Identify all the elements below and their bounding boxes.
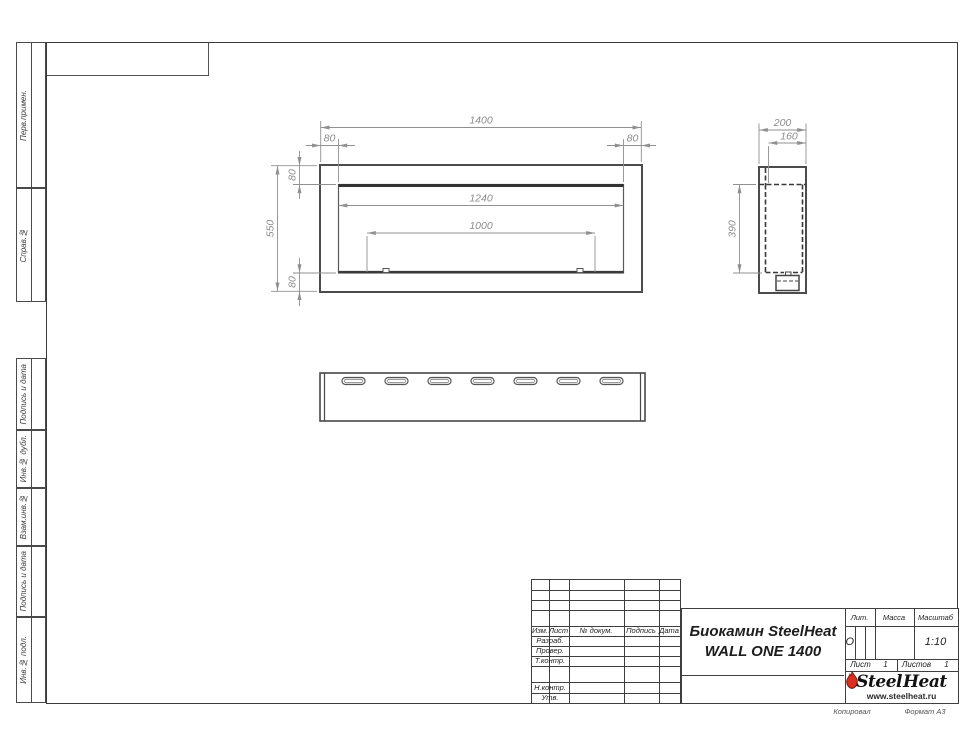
col-data: Дата [659,626,680,636]
lit-label: Лит. [845,609,875,626]
masshtab-value: 1:10 [914,626,958,659]
drawing-frame [46,42,958,704]
col-list: Лист [549,626,569,636]
steelheat-logo: Steel Heat www.steelheat.ru [845,671,959,703]
logo-steel-text: Steel [856,672,902,692]
margin-label: Справ.№ [19,228,28,262]
margin-box-podpis-data-1: Подпись и дата [16,358,46,430]
logo-heat-text: Heat [903,672,947,692]
logo-site-url: www.steelheat.ru [867,691,937,701]
drawing-sheet: 1400 80 80 550 80 80 1240 1000 [0,0,970,749]
title-block: Биокамин SteelHeat WALL ONE 1400 Лит. Ма… [681,608,959,704]
margin-box-inv-dubl: Инв.№ дубл. [16,430,46,488]
role-tkontr: Т.контр. [532,656,569,666]
top-left-designation-box [47,43,209,76]
lit-value: О [845,626,856,659]
role-utv: Утв. [532,693,569,703]
margin-box-perv-primen: Перв.примен. [16,42,46,188]
format-note: Формат А3 [890,707,960,716]
listov-value: 1 [937,659,957,671]
kopiroval-note: Копировал [807,707,897,716]
col-izm: Изм. [532,626,549,636]
doc-title-line2: WALL ONE 1400 [705,643,821,660]
col-dokum: № докум. [569,626,624,636]
list-label: Лист [845,659,877,671]
margin-box-vzam-inv: Взам.инв.№ [16,488,46,546]
doc-title-line1: Биокамин SteelHeat [690,623,837,640]
col-podpis: Подпись [624,626,659,636]
flame-icon [845,671,859,689]
margin-box-sprav-no: Справ.№ [16,188,46,302]
role-nkontr: Н.контр. [532,682,569,693]
margin-label: Подпись и дата [19,364,28,425]
margin-box-podpis-data-2: Подпись и дата [16,546,46,617]
margin-label: Инв.№ подл. [19,636,28,684]
margin-box-inv-podl: Инв.№ подл. [16,617,46,703]
revision-table: Изм. Лист № докум. Подпись Дата Разраб. … [531,579,682,704]
role-prover: Провер. [532,646,569,656]
list-value: 1 [877,659,895,671]
document-title: Биокамин SteelHeat WALL ONE 1400 [682,609,845,675]
listov-label: Листов [897,659,937,671]
massa-label: Масса [875,609,914,626]
margin-label: Инв.№ дубл. [19,435,28,482]
margin-label: Взам.инв.№ [19,494,28,539]
margin-label: Подпись и дата [19,551,28,612]
margin-label: Перв.примен. [19,90,28,141]
masshtab-label: Масштаб [914,609,958,626]
role-razrab: Разраб. [532,636,569,646]
